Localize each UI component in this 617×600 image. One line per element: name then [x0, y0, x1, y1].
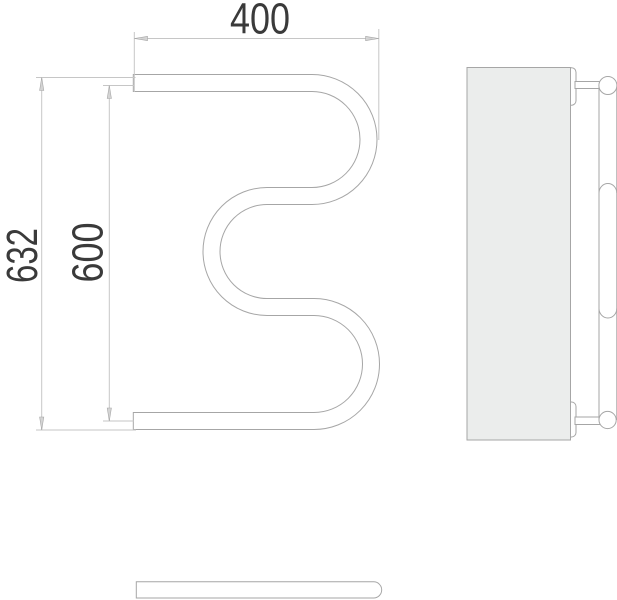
dimension-width: 400	[134, 0, 378, 140]
arrow-left-icon	[134, 36, 147, 40]
dimension-width-label: 400	[230, 0, 290, 44]
side-view	[467, 68, 617, 441]
dimension-overall-height-label: 632	[0, 228, 47, 283]
arrow-up-icon	[107, 86, 111, 99]
pipe-bend-cap-lower	[599, 309, 617, 318]
pipe-port-top	[599, 77, 617, 95]
wall-panel	[467, 68, 571, 441]
arrow-right-icon	[366, 36, 379, 40]
dimension-height-label: 600	[64, 223, 113, 283]
dimension-height: 600	[64, 86, 135, 422]
top-view	[136, 582, 381, 598]
serpentine-pipe-body	[133, 83, 371, 421]
serpentine-pipe-outline	[133, 83, 371, 421]
drawing-canvas: 400 632 600	[0, 0, 617, 600]
arrow-down-icon	[107, 408, 111, 421]
arrow-up-icon	[40, 78, 44, 91]
pipe-bend-cap-upper	[599, 184, 617, 193]
technical-drawing: 400 632 600	[0, 0, 617, 600]
bracket-arm-top	[575, 82, 600, 89]
arrow-down-icon	[40, 417, 44, 430]
pipe-port-bottom	[599, 411, 616, 428]
pipe-plan-profile	[136, 582, 381, 598]
front-view	[133, 74, 371, 430]
bracket-arm-bottom	[575, 417, 600, 425]
